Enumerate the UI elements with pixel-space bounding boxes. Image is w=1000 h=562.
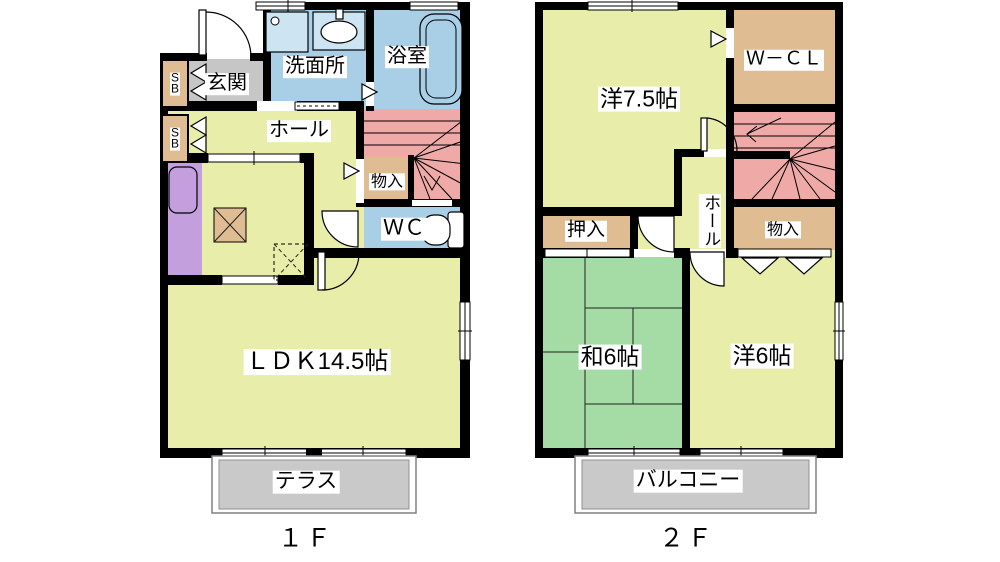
label-wcl: Ｗ－ＣＬ [744, 50, 824, 71]
window-ldk-right [458, 302, 472, 360]
label-terrace: テラス [273, 471, 340, 494]
sliding-door-kitchen-ldk [222, 276, 278, 284]
floor-plan-canvas: S B S B 玄関 洗面所 浴室 ホール 物入 ＷＣ ＬＤＫ14.5帖 テラス… [0, 0, 1000, 562]
label-yo75: 洋7.5帖 [598, 87, 680, 112]
floor-plan-drawing [0, 0, 1000, 562]
opening-genkan-hall [257, 101, 297, 111]
label-wc: ＷＣ [381, 218, 427, 241]
label-balcony: バルコニー [634, 470, 743, 493]
washing-machine [266, 12, 308, 52]
entrance-door [199, 10, 251, 57]
label-hall-2f: ホール [699, 194, 721, 248]
opening-mononyu-1f [356, 159, 364, 203]
label-mononyu-2f: 物入 [765, 221, 801, 238]
label-shoe-box-1: S B [170, 73, 180, 96]
window-yo6-right [833, 302, 845, 360]
label-hall-1f: ホール [267, 120, 331, 142]
opening-wcl [726, 28, 734, 58]
sliding-door-senmenjo [295, 102, 339, 110]
label-shoe-box-2: S B [170, 128, 180, 151]
window-yo75-top [588, 0, 678, 12]
kitchen-counter [164, 163, 202, 277]
opening-stairs-1f [412, 200, 452, 206]
label-floor-1f: １Ｆ [276, 526, 336, 553]
label-mononyu-1f: 物入 [369, 173, 405, 190]
label-washitsu: 和6帖 [579, 345, 642, 370]
label-ldk: ＬＤＫ14.5帖 [244, 349, 391, 375]
label-yo6: 洋6帖 [731, 344, 794, 369]
label-senmenjo: 洗面所 [283, 56, 347, 78]
toilet [422, 212, 464, 248]
label-yokushitsu: 浴室 [385, 46, 429, 68]
window-bath-top [410, 2, 458, 10]
wash-basin [313, 9, 365, 50]
label-genkan: 玄関 [205, 73, 249, 95]
window-senmenjo-top [256, 0, 305, 12]
floor-hatch [214, 208, 246, 242]
floor-2f [535, 0, 845, 513]
label-oshiire: 押入 [565, 221, 607, 242]
sliding-door-oshiire [545, 249, 630, 257]
label-floor-2f: ２Ｆ [657, 526, 717, 553]
